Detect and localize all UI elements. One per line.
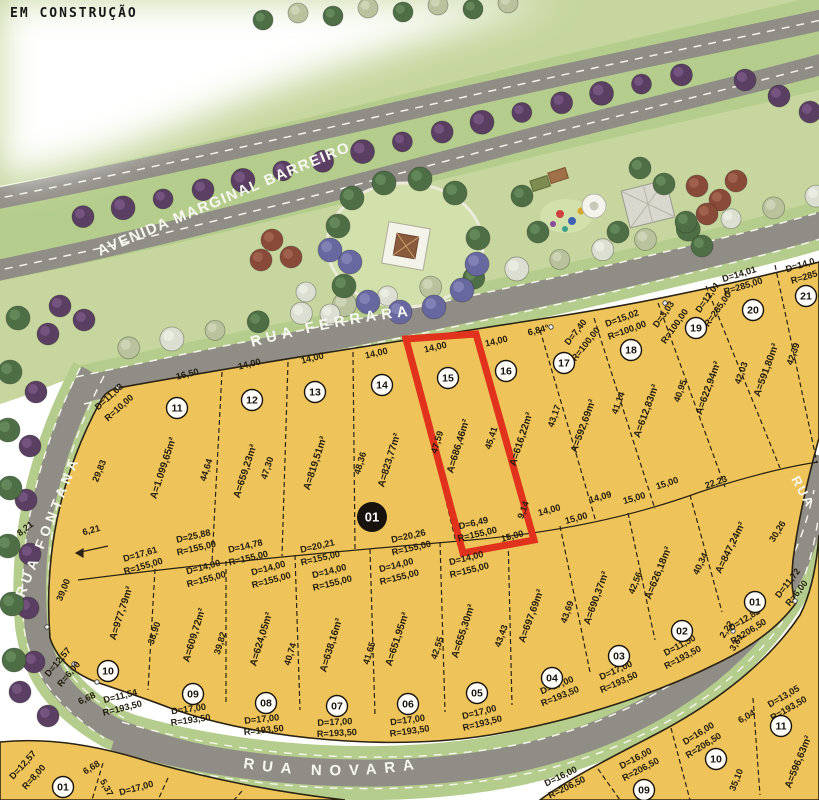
svg-text:09: 09 <box>187 689 199 701</box>
lot-badge: 03 <box>609 646 630 667</box>
site-plan-map: 16,5014,0014,0014,0014,0014,006,84°D=11,… <box>0 0 819 800</box>
svg-text:07: 07 <box>331 701 343 713</box>
lot-badge: 01 <box>53 777 74 798</box>
svg-text:20: 20 <box>747 305 759 317</box>
lot-badge: 16 <box>496 361 517 382</box>
svg-text:01: 01 <box>57 782 69 794</box>
svg-text:14: 14 <box>376 380 388 392</box>
svg-text:18: 18 <box>625 345 637 357</box>
svg-text:13: 13 <box>309 387 321 399</box>
dimension-label: R=193,50 <box>317 727 358 739</box>
dimension-label: D=17,00 <box>317 716 352 728</box>
svg-text:10: 10 <box>102 666 114 678</box>
lot-badge: 11 <box>167 398 188 419</box>
lot-badge: 15 <box>438 368 459 389</box>
svg-text:19: 19 <box>690 323 702 335</box>
svg-text:11: 11 <box>775 721 786 733</box>
central-gazebo <box>382 222 431 271</box>
svg-text:09: 09 <box>638 785 650 797</box>
svg-text:21: 21 <box>800 291 812 303</box>
lot-badge: 18 <box>621 340 642 361</box>
svg-text:01: 01 <box>749 597 761 609</box>
svg-text:12: 12 <box>246 395 258 407</box>
lot-badge: 09 <box>634 780 655 800</box>
svg-text:16: 16 <box>500 366 512 378</box>
construction-note: EM CONSTRUÇÃO <box>10 6 138 21</box>
lot-badge: 09 <box>183 684 204 705</box>
lot-badge: 17 <box>554 353 575 374</box>
lot-badge: 04 <box>542 668 563 689</box>
lot-badge: 11 <box>771 716 792 737</box>
svg-text:06: 06 <box>402 699 414 711</box>
svg-text:08: 08 <box>260 698 272 710</box>
playground-equipment <box>556 210 564 218</box>
lot-badge: 07 <box>327 696 348 717</box>
lot-badge: 13 <box>305 382 326 403</box>
svg-text:02: 02 <box>676 626 688 638</box>
svg-text:01: 01 <box>365 510 379 525</box>
svg-text:05: 05 <box>471 688 483 700</box>
lot-badge: 01 <box>745 592 766 613</box>
lot-badge: 06 <box>398 694 419 715</box>
svg-text:03: 03 <box>613 651 625 663</box>
lot-badge: 14 <box>372 375 393 396</box>
svg-text:04: 04 <box>546 673 558 685</box>
lot-badge: 10 <box>98 661 119 682</box>
lot-badge: 20 <box>743 300 764 321</box>
svg-text:15: 15 <box>442 373 454 385</box>
lot-badge: 10 <box>706 749 727 770</box>
lot-badge: 12 <box>242 390 263 411</box>
lot-badge: 02 <box>672 621 693 642</box>
svg-text:11: 11 <box>171 403 182 415</box>
svg-text:17: 17 <box>558 358 570 370</box>
svg-text:10: 10 <box>710 754 722 766</box>
lot-badge: 05 <box>467 683 488 704</box>
lot-badge: 19 <box>686 318 707 339</box>
quadra-badge: 01 <box>357 502 387 532</box>
lot-badge: 21 <box>796 286 817 307</box>
site-plan-screenshot: 16,5014,0014,0014,0014,0014,006,84°D=11,… <box>0 0 819 800</box>
lot-badge: 08 <box>256 693 277 714</box>
